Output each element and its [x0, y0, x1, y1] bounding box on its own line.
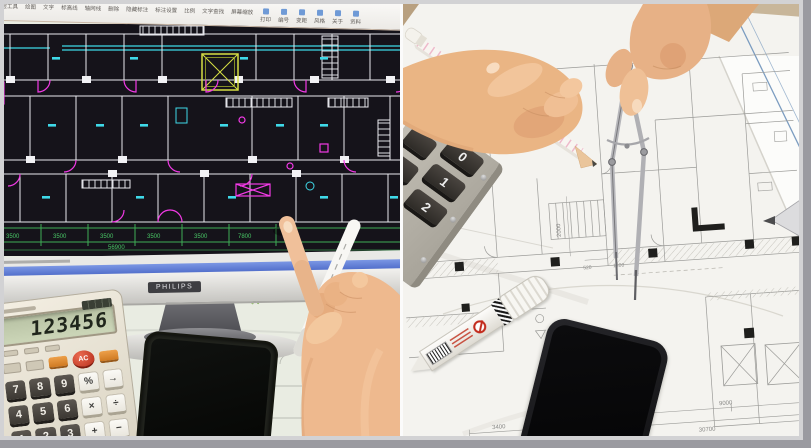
menu-item: 资料 [350, 11, 361, 26]
menu-item: 图层工具 [4, 4, 18, 10]
key-4: 4 [8, 405, 31, 428]
dim-label: 7800 [238, 234, 252, 240]
calculator: 123456 AC 7 8 9 % → 4 5 6 × ÷ 1 [4, 288, 142, 440]
key-2: 2 [35, 426, 58, 440]
menu-item: 轴网线 [85, 4, 102, 12]
key-arrow: → [102, 368, 125, 391]
right-photo-blueprint-drafting: 2000 520 1200 3400 9000 30700 0 1 2 [403, 4, 799, 440]
menu-item: 打印 [260, 8, 271, 23]
dim-2000: 2000 [556, 223, 563, 237]
key-multiply: × [80, 396, 103, 419]
photo-collage: 3500 3500 3500 3500 3500 7800 56900 图层工具… [0, 0, 811, 448]
dim-label: 3500 [53, 234, 67, 240]
key-6: 6 [56, 399, 79, 422]
menu-item: 比例 [184, 6, 195, 14]
calculator-keypad: 7 8 9 % → 4 5 6 × ÷ 1 2 3 + − 0 00 · = [5, 368, 134, 440]
dim-label: 3500 [147, 234, 161, 240]
dim-label: 3500 [194, 234, 208, 240]
left-photo-cad-workstation: 3500 3500 3500 3500 3500 7800 56900 图层工具… [4, 4, 400, 440]
key-9: 9 [53, 374, 76, 397]
ac-key: AC [72, 349, 96, 370]
desk-plan-columns [308, 349, 398, 429]
desk-blueprint-lines [272, 344, 400, 440]
key-percent: % [77, 371, 100, 394]
key-minus: − [108, 417, 131, 440]
dim-label: 3500 [6, 234, 20, 240]
menu-item: 文字查找 [202, 7, 224, 16]
monitor-brand-logo: PHILIPS [148, 281, 202, 293]
dim-520: 520 [583, 265, 592, 272]
dim-label: 3500 [100, 234, 114, 240]
menu-item: 删除 [108, 5, 119, 13]
menu-item: 关于 [332, 10, 343, 25]
menu-item: 变距 [296, 9, 307, 24]
monitor-screen: 3500 3500 3500 3500 3500 7800 56900 [4, 24, 400, 256]
dim-30700: 30700 [699, 427, 717, 434]
menu-item: 屏幕缩放 [231, 8, 253, 17]
cad-floor-plan: 3500 3500 3500 3500 3500 7800 56900 [4, 24, 400, 256]
dim-1200: 1200 [613, 263, 625, 270]
menu-item: 绘图 [25, 4, 36, 11]
smartphone [137, 333, 277, 440]
menu-item: 标高线 [61, 4, 78, 12]
function-key [4, 362, 22, 374]
menu-item: 隐藏标注 [126, 5, 148, 14]
menu-item: 标注设置 [155, 6, 177, 15]
orange-key [99, 349, 119, 363]
total-dim-label: 56900 [108, 245, 125, 251]
key-1: 1 [11, 429, 34, 440]
key-5: 5 [32, 402, 55, 425]
key-3: 3 [59, 423, 82, 440]
key-7: 7 [5, 380, 28, 403]
menu-item: 文字 [43, 4, 54, 11]
key-plus: + [83, 420, 106, 440]
marker-barcode [425, 341, 452, 365]
dim-3400: 3400 [492, 424, 506, 431]
phone-screen [142, 338, 271, 440]
key-divide: ÷ [105, 393, 128, 416]
marker-logo [470, 317, 488, 335]
calculator-display-value: 123456 [30, 307, 108, 341]
function-key [25, 359, 44, 371]
menu-item: 编号 [278, 9, 289, 24]
marker-red-text [449, 328, 473, 348]
calculator-key [403, 126, 439, 162]
key-8: 8 [29, 377, 52, 400]
menu-item: 风格 [314, 10, 325, 25]
dim-9000: 9000 [719, 400, 733, 407]
collage-frame: 3500 3500 3500 3500 3500 7800 56900 图层工具… [0, 0, 803, 440]
orange-key [48, 355, 68, 369]
